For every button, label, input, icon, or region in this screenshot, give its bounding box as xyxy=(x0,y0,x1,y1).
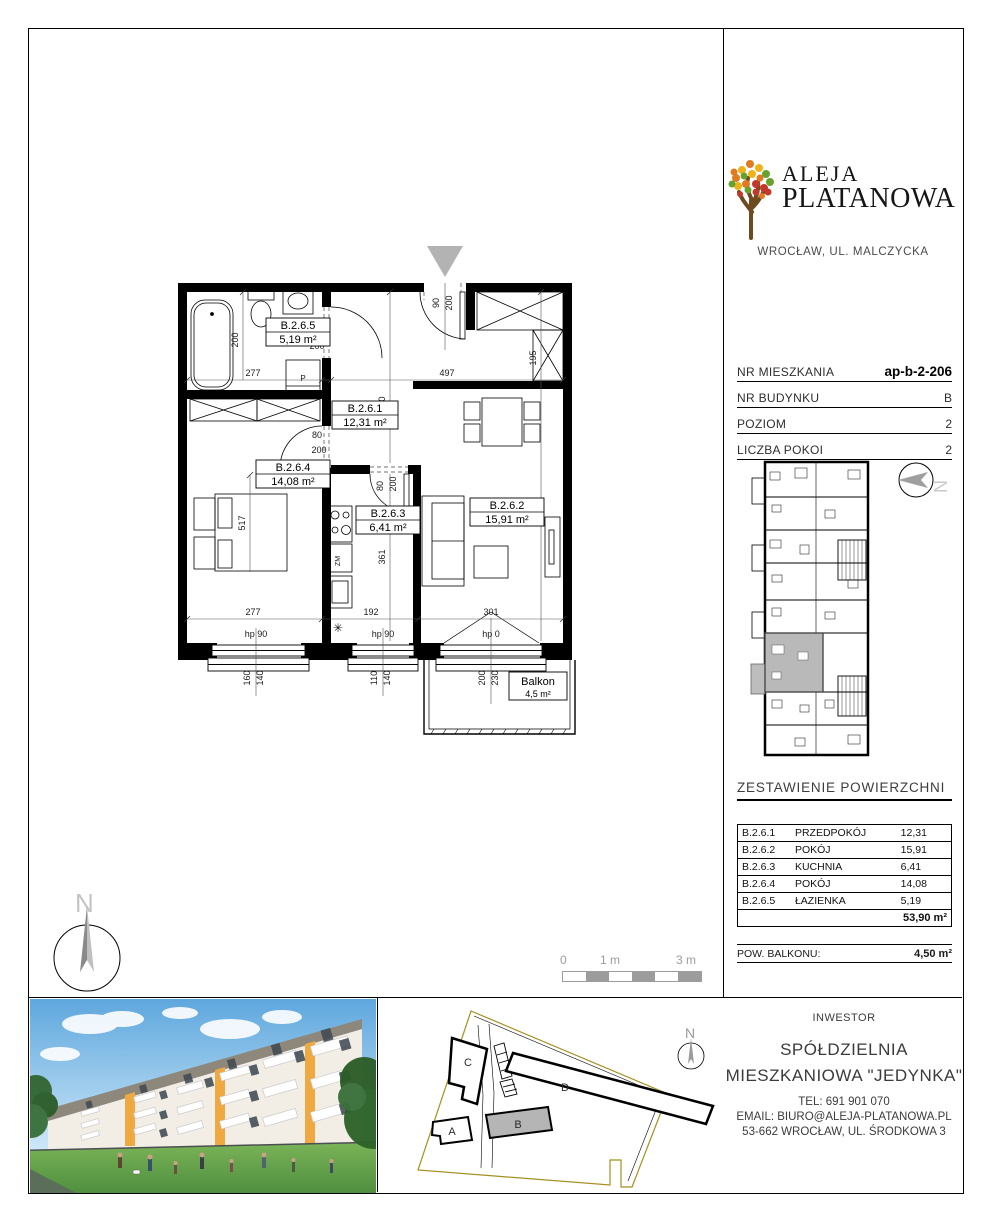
svg-text:5,19 m²: 5,19 m² xyxy=(279,334,317,346)
tv-cabinet-icon xyxy=(545,517,560,577)
brand-line2: PLATANOWA xyxy=(782,185,962,213)
table-row: B.2.6.1PRZEDPOKÓJ12,31 xyxy=(738,825,952,842)
north-compass: N xyxy=(40,885,140,1000)
areas-title: ZESTAWIENIE POWIERZCHNI xyxy=(737,780,952,801)
svg-text:hp 0: hp 0 xyxy=(482,629,500,639)
svg-text:80: 80 xyxy=(312,430,322,440)
building-floor-overview: N xyxy=(738,450,953,760)
investor-phone: TEL: 691 901 070 xyxy=(724,1096,964,1108)
scale-bar-segments xyxy=(562,971,702,982)
siteplan-compass: N xyxy=(678,1025,704,1069)
vent-icon: ✳ xyxy=(333,621,343,635)
room-label-hall: B.2.6.1 12,31 m² xyxy=(332,401,398,429)
svg-text:517: 517 xyxy=(237,515,247,530)
svg-text:200: 200 xyxy=(230,332,240,347)
svg-text:90: 90 xyxy=(431,298,441,308)
svg-text:6,41 m²: 6,41 m² xyxy=(369,522,407,534)
apartment-floorplan: 277 497 277 192 301 200 360 361 195 536 … xyxy=(150,235,620,745)
building-b-label: B xyxy=(514,1119,521,1131)
svg-text:277: 277 xyxy=(245,607,260,617)
apartment-details: NR MIESZKANIA ap-b-2-206 NR BUDYNKU B PO… xyxy=(737,356,952,460)
table-row: B.2.6.3KUCHNIA6,41 xyxy=(738,859,952,876)
svg-text:497: 497 xyxy=(439,368,454,378)
svg-text:hp 90: hp 90 xyxy=(372,629,395,639)
compass-needle-icon xyxy=(688,1038,694,1064)
investor-email: EMAIL: BIURO@ALEJA-PLATANOWA.PL xyxy=(724,1111,964,1123)
scale-one: 1 m xyxy=(600,953,620,967)
detail-row-nr-budynku: NR BUDYNKU B xyxy=(737,382,952,408)
svg-text:301: 301 xyxy=(483,607,498,617)
svg-text:192: 192 xyxy=(363,607,378,617)
brand-address: WROCŁAW, UL. MALCZYCKA xyxy=(723,246,963,258)
table-row: B.2.6.2POKÓJ15,91 xyxy=(738,842,952,859)
brand-line1: ALEJA xyxy=(782,163,962,185)
nightstand-icon xyxy=(194,498,215,530)
svg-text:B.2.6.4: B.2.6.4 xyxy=(276,462,311,474)
building-d-label: D xyxy=(561,1082,569,1094)
svg-text:B.2.6.5: B.2.6.5 xyxy=(281,320,316,332)
svg-text:ZM: ZM xyxy=(335,556,342,566)
svg-text:277: 277 xyxy=(245,368,260,378)
north-letter: N xyxy=(930,480,950,493)
building-c-label: C xyxy=(464,1057,472,1069)
investor-address: 53-662 WROCŁAW, UL. ŚRODKOWA 3 xyxy=(724,1126,964,1138)
svg-text:140: 140 xyxy=(255,670,265,685)
north-letter: N xyxy=(75,888,94,918)
building-a-label: A xyxy=(448,1126,456,1138)
svg-text:200: 200 xyxy=(388,476,398,491)
investor-caption: INWESTOR xyxy=(724,1012,964,1024)
site-plan: C D A B N xyxy=(377,998,723,1193)
investor-name-line2: MIESZKANIOWA "JEDYNKA" xyxy=(724,1066,964,1086)
svg-text:4,5 m²: 4,5 m² xyxy=(525,689,551,699)
table-total-row: 53,90 m² xyxy=(738,910,952,927)
balcony-area-label: POW. BALKONU: xyxy=(737,948,820,960)
brand-tree-icon xyxy=(726,156,780,242)
tree-leaves xyxy=(729,160,775,199)
scale-three: 3 m xyxy=(676,953,696,967)
scale-bar: 0 1 m 3 m xyxy=(560,953,700,985)
svg-text:B.2.6.3: B.2.6.3 xyxy=(371,508,406,520)
bed-icon xyxy=(215,494,287,571)
brand-wordmark: ALEJA PLATANOWA xyxy=(782,163,962,213)
svg-text:110: 110 xyxy=(369,671,379,685)
investor-block: INWESTOR SPÓŁDZIELNIA MIESZKANIOWA "JEDY… xyxy=(724,1012,964,1138)
svg-text:15,91 m²: 15,91 m² xyxy=(485,514,529,526)
svg-text:B.2.6.1: B.2.6.1 xyxy=(348,403,383,415)
furniture xyxy=(191,288,560,608)
detail-row-poziom: POZIOM 2 xyxy=(737,408,952,434)
table-row: B.2.6.5ŁAZIENKA5,19 xyxy=(738,893,952,910)
svg-text:P: P xyxy=(300,374,305,383)
coffee-table-icon xyxy=(474,546,508,578)
sidebar-divider xyxy=(723,28,724,997)
investor-name-line1: SPÓŁDZIELNIA xyxy=(724,1040,964,1060)
dining-table-icon xyxy=(482,398,522,446)
room-label-balcony: Balkon 4,5 m² xyxy=(509,672,567,700)
dog xyxy=(133,1170,140,1174)
tv-icon xyxy=(549,530,554,564)
stove-icon xyxy=(328,506,352,542)
svg-text:12,31 m²: 12,31 m² xyxy=(343,417,387,429)
balcony-area-value: 4,50 m² xyxy=(914,948,952,960)
svg-text:160: 160 xyxy=(242,670,252,685)
area-table: B.2.6.1PRZEDPOKÓJ12,31 B.2.6.2POKÓJ15,91… xyxy=(737,824,952,927)
sidebar-compass: N xyxy=(898,463,950,497)
nightstand-icon xyxy=(194,537,215,569)
chair-icon xyxy=(464,424,480,442)
svg-text:140: 140 xyxy=(382,670,392,685)
room-label-livingroom: B.2.6.2 15,91 m² xyxy=(470,498,544,526)
highlighted-apartment xyxy=(751,633,823,694)
balcony-area-box: POW. BALKONU: 4,50 m² xyxy=(737,944,952,963)
chair-icon xyxy=(524,424,540,442)
svg-text:230: 230 xyxy=(490,670,500,685)
room-label-bathroom: B.2.6.5 5,19 m² xyxy=(266,318,330,346)
entrance-arrow-icon xyxy=(427,246,463,277)
svg-text:200: 200 xyxy=(477,670,487,685)
svg-text:14,08 m²: 14,08 m² xyxy=(271,476,315,488)
scale-zero: 0 xyxy=(560,953,567,967)
north-letter: N xyxy=(685,1025,695,1041)
dimension-labels: 277 497 277 192 301 200 360 361 195 536 … xyxy=(230,295,538,685)
svg-text:B.2.6.2: B.2.6.2 xyxy=(490,500,525,512)
floorplan-sheet: { "brand": { "line1": "ALEJA", "line2": … xyxy=(0,0,992,1222)
building-c xyxy=(449,1038,487,1104)
svg-text:200: 200 xyxy=(444,295,454,310)
chair-icon xyxy=(464,402,480,420)
svg-text:361: 361 xyxy=(377,549,387,564)
chair-icon xyxy=(524,402,540,420)
compass-needle-icon xyxy=(898,472,928,488)
svg-text:hp 90: hp 90 xyxy=(245,629,268,639)
detail-row-nr-mieszkania: NR MIESZKANIA ap-b-2-206 xyxy=(737,356,952,382)
svg-text:Balkon: Balkon xyxy=(521,676,555,688)
svg-text:200: 200 xyxy=(311,445,326,455)
svg-text:80: 80 xyxy=(375,481,385,491)
table-row: B.2.6.4POKÓJ14,08 xyxy=(738,876,952,893)
building-photo xyxy=(30,999,376,1193)
svg-text:195: 195 xyxy=(528,350,538,365)
room-label-kitchen: B.2.6.3 6,41 m² xyxy=(356,506,420,534)
windows xyxy=(208,612,546,671)
room-label-bedroom: B.2.6.4 14,08 m² xyxy=(256,460,330,488)
